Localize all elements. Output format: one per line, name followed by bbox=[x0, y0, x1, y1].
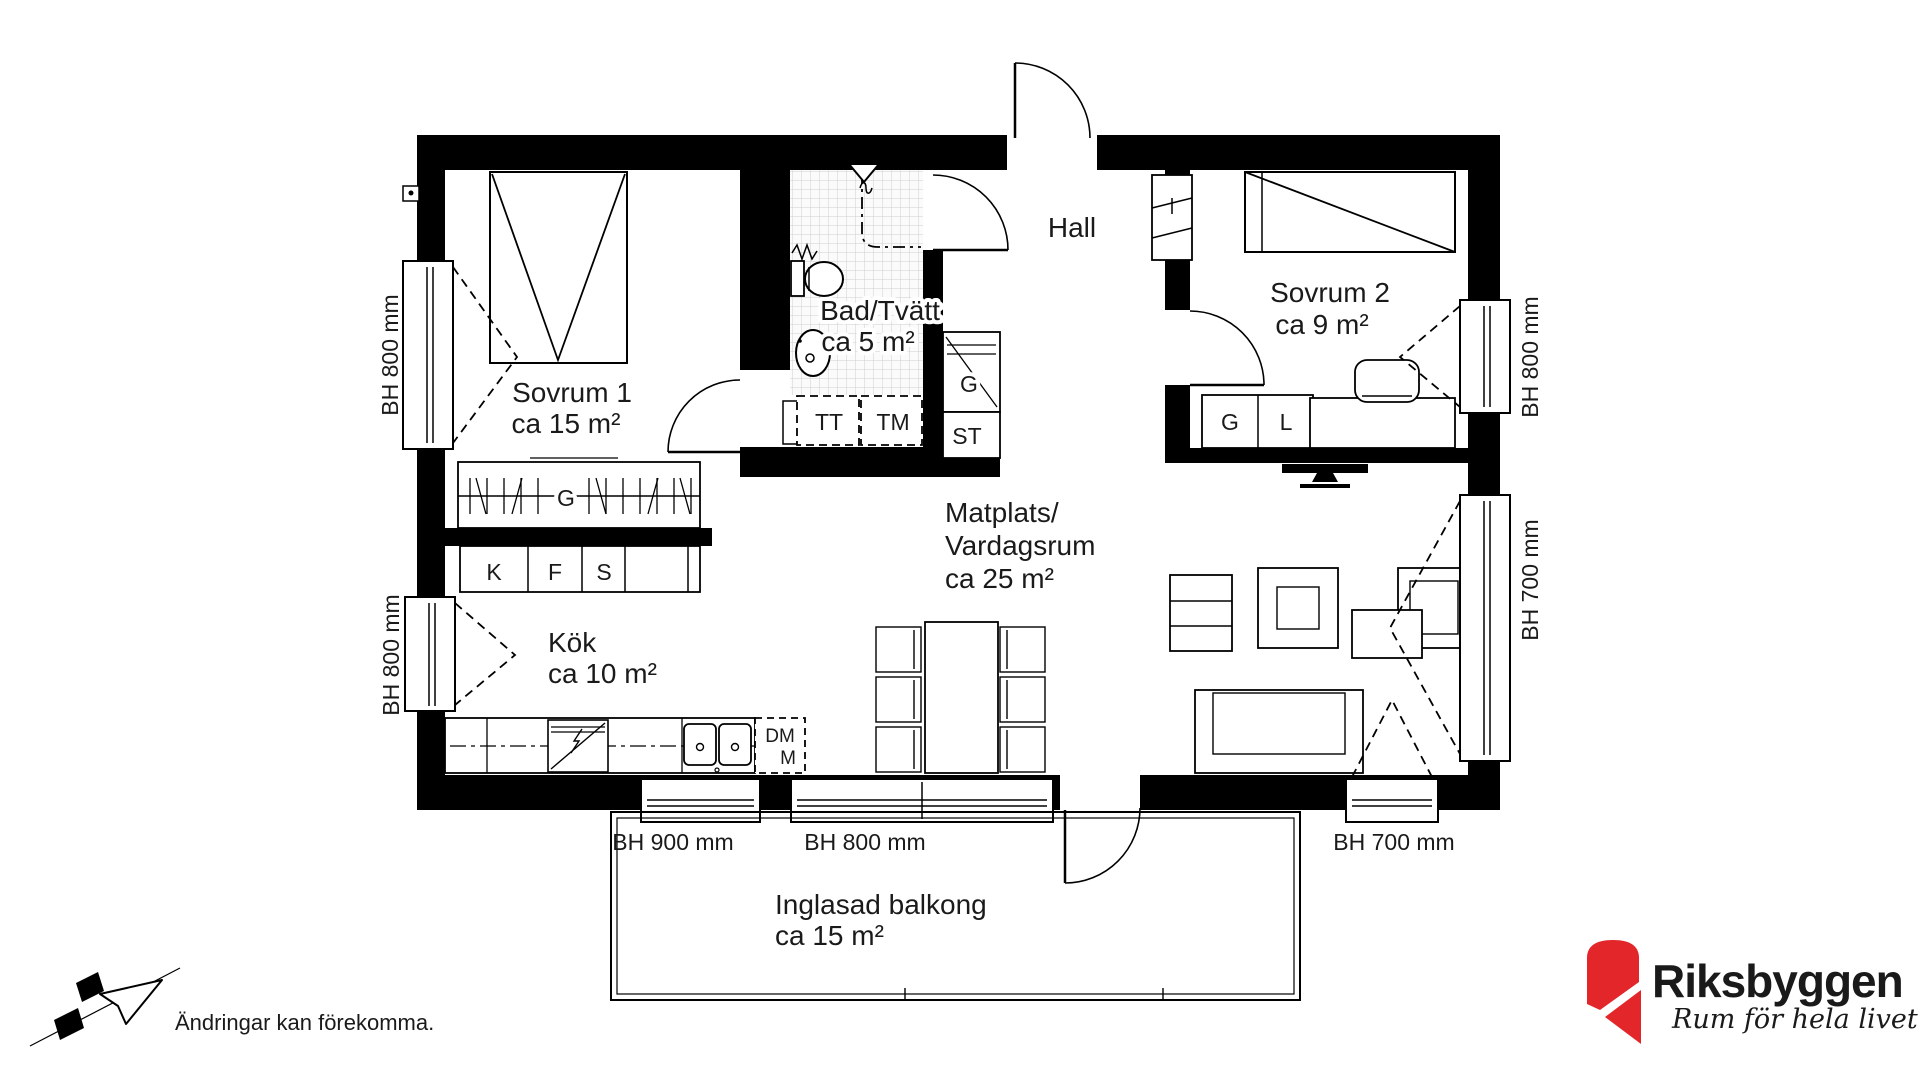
room-label-balkong: Inglasad balkong bbox=[775, 889, 987, 920]
floor-plan: TT TM G ST bbox=[0, 0, 1920, 1080]
dishwasher-label: DM bbox=[765, 726, 795, 747]
room-area-sovrum2: ca 9 m² bbox=[1275, 309, 1368, 340]
room-area-matplats: ca 25 m² bbox=[945, 563, 1054, 594]
disclaimer-text: Ändringar kan förekomma. bbox=[175, 1010, 434, 1035]
side-table-icon bbox=[1352, 610, 1422, 658]
sovrum2-wardrobe-label: G bbox=[1221, 409, 1239, 435]
balcony-door bbox=[1065, 808, 1140, 883]
room-label-matplats-2: Vardagsrum bbox=[945, 530, 1095, 561]
bh-label-bottom-right: BH 700 mm bbox=[1333, 829, 1454, 855]
riksbyggen-logo-icon bbox=[1587, 940, 1641, 1044]
floor-plan-page: TT TM G ST bbox=[0, 0, 1920, 1080]
bed-icon bbox=[490, 172, 627, 363]
window-bottom-left bbox=[641, 779, 760, 822]
coffee-table-icon bbox=[1258, 568, 1338, 648]
washer-label: TM bbox=[876, 409, 909, 435]
bath-counter bbox=[783, 401, 797, 444]
bath-door bbox=[933, 175, 1008, 250]
stove-icon bbox=[548, 720, 608, 772]
logo-tagline-text: Rum för hela livet bbox=[1671, 1004, 1918, 1035]
bh-label-bottom-center: BH 800 mm bbox=[804, 829, 925, 855]
logo-name-text: Riksbyggen bbox=[1652, 955, 1903, 1007]
riksbyggen-logo: Riksbyggen Rum för hela livet bbox=[1587, 940, 1918, 1044]
sovrum2-linen-label: L bbox=[1280, 409, 1293, 435]
bed2-icon bbox=[1245, 172, 1455, 252]
window-bottom-center bbox=[791, 779, 1053, 822]
coat-rack-icon bbox=[1152, 175, 1192, 260]
kitchen-counter: DM M bbox=[445, 718, 805, 773]
bh-label-right-bottom: BH 700 mm bbox=[1517, 519, 1543, 640]
micro-label: M bbox=[780, 748, 796, 769]
room-label-bad: Bad/Tvätt bbox=[820, 295, 940, 326]
toilet-icon bbox=[791, 261, 843, 296]
sovrum2-door bbox=[1190, 311, 1264, 385]
wardrobe-label: G bbox=[557, 485, 575, 511]
bh-label-left-bottom: BH 800 mm bbox=[378, 594, 404, 715]
tv-icon bbox=[1282, 464, 1368, 488]
room-area-kok: ca 10 m² bbox=[548, 658, 657, 689]
window-left-bottom bbox=[405, 597, 515, 711]
hall-closet-label: G bbox=[960, 371, 978, 397]
sovrum1-door bbox=[668, 380, 740, 452]
bh-label-right-top: BH 800 mm bbox=[1517, 296, 1543, 417]
sovrum1-furniture: G bbox=[458, 172, 700, 528]
dining-table-icon bbox=[876, 622, 1045, 773]
room-label-kok: Kök bbox=[548, 627, 597, 658]
room-label-sovrum1: Sovrum 1 bbox=[512, 377, 632, 408]
fridge-freezer-pantry-row: K F S bbox=[460, 546, 700, 592]
north-arrow-icon bbox=[30, 968, 180, 1046]
room-area-balkong: ca 15 m² bbox=[775, 920, 884, 951]
sovrum2-wardrobe-row: G L bbox=[1202, 395, 1313, 448]
sofa-icon bbox=[1195, 690, 1363, 773]
room-label-matplats-1: Matplats/ bbox=[945, 497, 1059, 528]
fridge-label: K bbox=[486, 559, 502, 585]
desk-icon bbox=[1310, 360, 1455, 448]
livingroom-furniture bbox=[876, 568, 1470, 773]
bh-label-bottom-left: BH 900 mm bbox=[612, 829, 733, 855]
pantry-label: S bbox=[596, 559, 611, 585]
bh-label-left-top: BH 800 mm bbox=[377, 294, 403, 415]
room-area-bad: ca 5 m² bbox=[821, 326, 914, 357]
room-label-sovrum2: Sovrum 2 bbox=[1270, 277, 1390, 308]
tv-bench-icon bbox=[1170, 575, 1232, 651]
dryer-label: TT bbox=[815, 409, 843, 435]
cleaning-closet-label: ST bbox=[952, 423, 981, 449]
room-label-hall: Hall bbox=[1048, 212, 1096, 243]
freezer-label: F bbox=[548, 559, 562, 585]
room-area-sovrum1: ca 15 m² bbox=[512, 408, 621, 439]
entrance-door bbox=[1015, 63, 1090, 138]
wardrobe-icon: G bbox=[458, 458, 700, 528]
